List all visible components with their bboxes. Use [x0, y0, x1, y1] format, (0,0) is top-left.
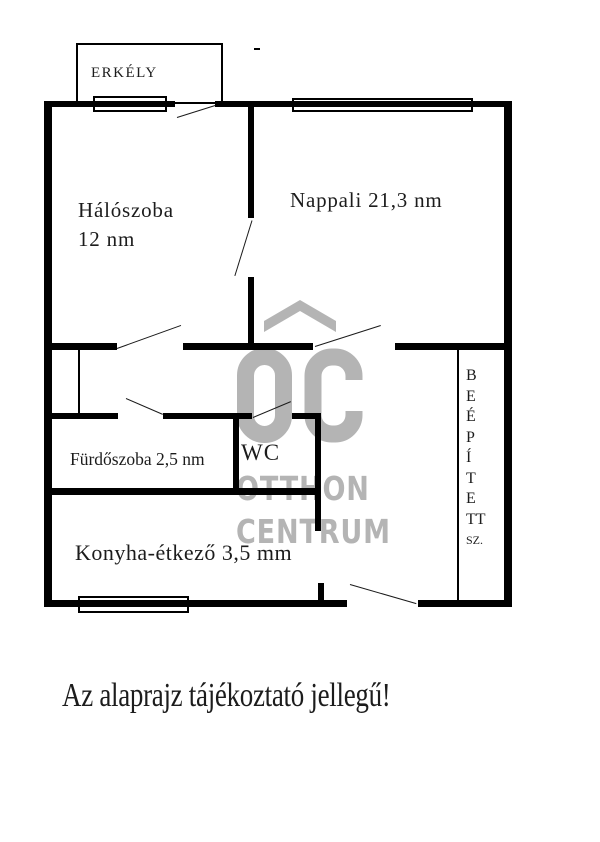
wall-outer-left	[44, 101, 52, 607]
builtin-letter: T	[466, 469, 486, 490]
builtin-letter: B	[466, 366, 486, 387]
room-label-builtin-wardrobe: B E É P Í T E TT SZ.	[466, 366, 486, 551]
builtin-letter: SZ.	[466, 530, 486, 551]
room-label-bedroom-area: 12 nm	[78, 225, 174, 254]
room-label-bathroom: Fürdőszoba 2,5 nm	[70, 449, 205, 470]
room-label-wc: WC	[241, 440, 280, 466]
builtin-letter: Í	[466, 448, 486, 469]
builtin-letter: E	[466, 489, 486, 510]
wall-hall-top-1	[44, 343, 117, 350]
wall-wc-right	[315, 413, 321, 531]
builtin-letter: TT	[466, 510, 486, 531]
builtin-letter: P	[466, 428, 486, 449]
wall-hall-top-2	[183, 343, 313, 350]
wall-hall-top-3	[395, 343, 512, 350]
wall-bath-wc-divider	[233, 413, 239, 490]
wall-bedroom-living-lower	[248, 277, 254, 348]
watermark-letter-o	[246, 357, 284, 435]
stray-mark	[254, 48, 260, 50]
room-label-living: Nappali 21,3 nm	[290, 188, 443, 213]
builtin-letter: É	[466, 407, 486, 428]
wall-entry-stub	[318, 583, 324, 600]
window-symbol-kitchen	[78, 596, 189, 613]
window-symbol-bedroom	[93, 96, 167, 112]
room-label-bedroom-name: Hálószoba	[78, 196, 174, 225]
wall-bottom-right-segment	[418, 600, 512, 607]
disclaimer-text: Az alaprajz tájékoztató jellegű!	[62, 676, 390, 715]
hall-closet-line	[78, 350, 80, 413]
room-label-kitchen: Konyha-étkező 3,5 mm	[75, 540, 292, 566]
builtin-wardrobe-line	[457, 350, 459, 600]
watermark-chevron-icon	[264, 300, 336, 332]
wall-bedroom-living-upper	[248, 101, 254, 218]
wall-kitchen-top	[44, 488, 318, 495]
floorplan-canvas: OTTHON CENTRUM ERKÉLY Hálószoba 12 nm Na…	[0, 0, 600, 842]
room-label-balcony: ERKÉLY	[91, 65, 158, 82]
room-label-bedroom: Hálószoba 12 nm	[78, 196, 174, 254]
window-symbol-living	[292, 98, 473, 112]
builtin-letter: E	[466, 387, 486, 408]
wall-outer-right	[504, 101, 512, 607]
wall-hall-bottom-1	[44, 413, 118, 419]
